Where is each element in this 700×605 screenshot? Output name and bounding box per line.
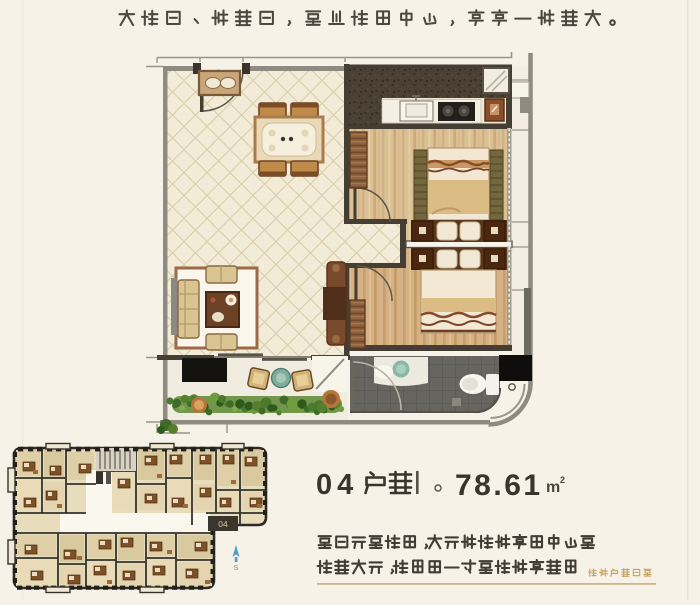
svg-text:S: S [234,565,239,572]
svg-text:m: m [546,479,560,496]
svg-text:78.61: 78.61 [455,469,543,502]
svg-text:04: 04 [218,519,228,529]
svg-text:04: 04 [316,469,358,501]
svg-text:2: 2 [560,475,565,485]
